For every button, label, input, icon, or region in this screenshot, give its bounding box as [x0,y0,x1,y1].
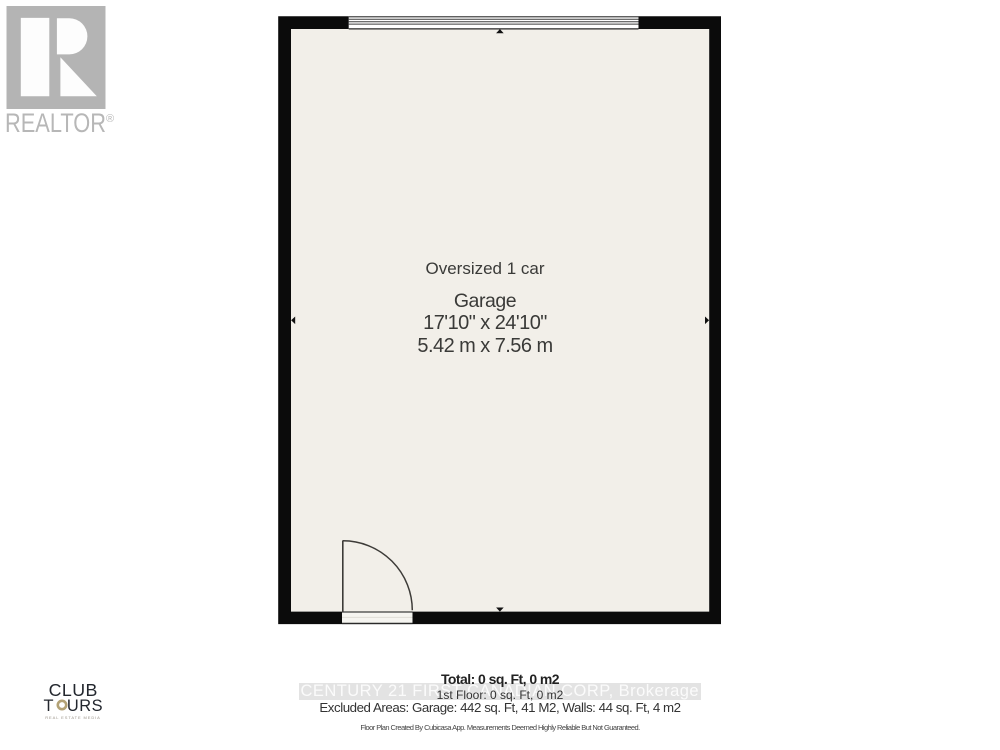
svg-text:®: ® [106,113,114,125]
svg-text:REALTOR: REALTOR [5,108,106,138]
